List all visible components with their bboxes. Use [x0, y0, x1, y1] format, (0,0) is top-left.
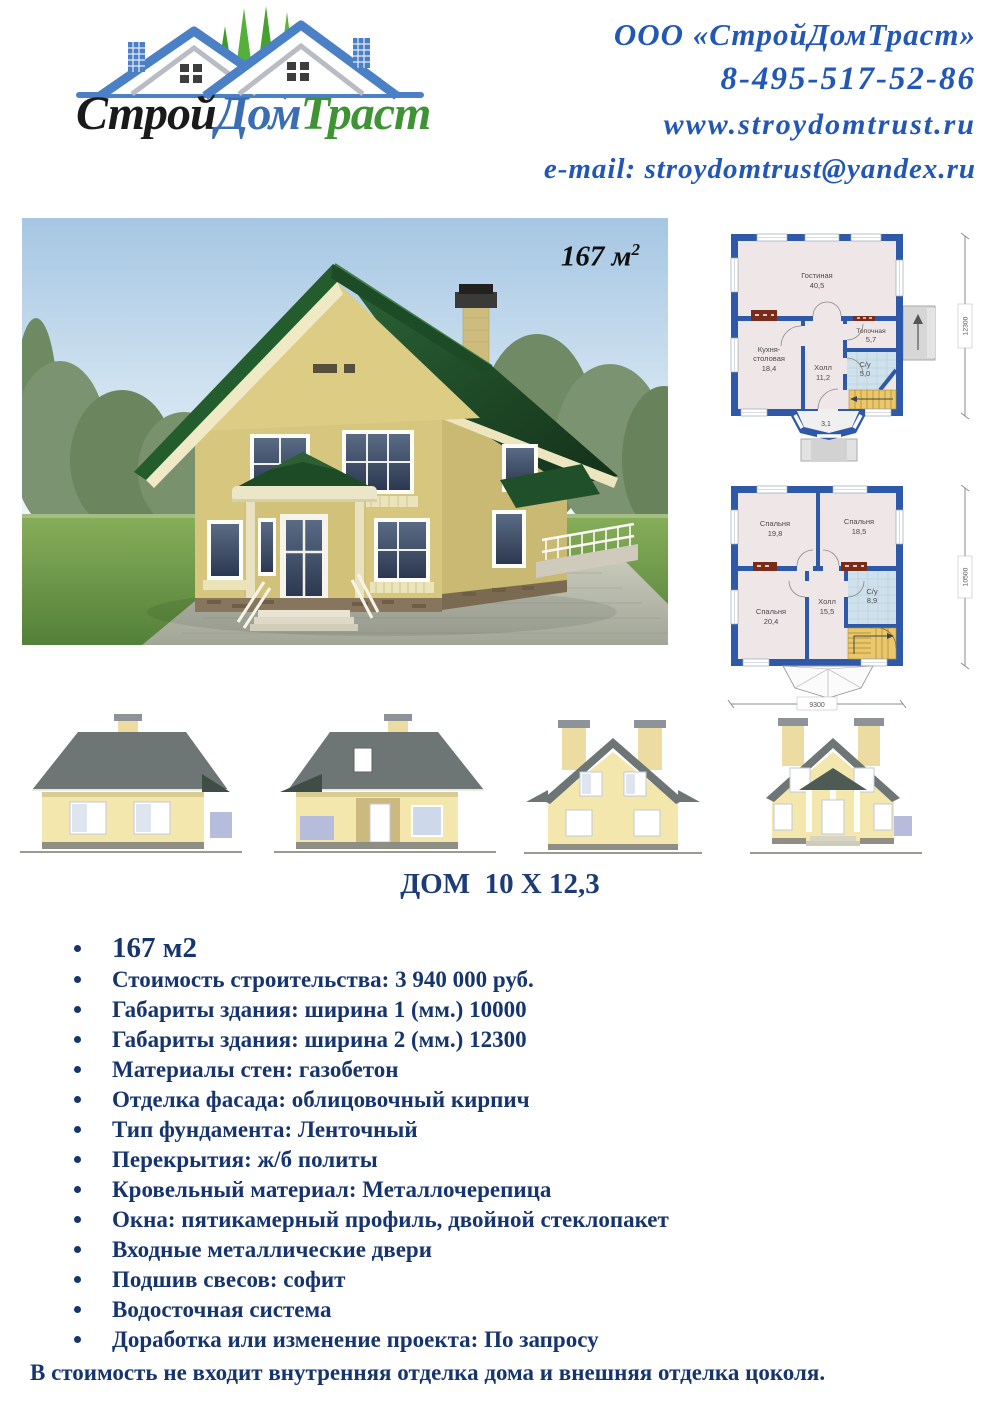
spec-item-drainage: Водосточная система — [74, 1295, 964, 1324]
spec-text: Материалы стен: газобетон — [112, 1055, 399, 1084]
bullet-icon — [74, 1306, 81, 1313]
spec-text: Водосточная система — [112, 1295, 332, 1324]
spec-item-foundation: Тип фундамента: Ленточный — [74, 1115, 964, 1144]
bullet-icon — [74, 1096, 81, 1103]
dimension-label-12300: 12300 — [963, 316, 970, 335]
elevation-side-left — [16, 712, 246, 862]
spec-item-price: Стоимость строительства: 3 940 000 руб. — [74, 965, 964, 994]
room-label-bedroom3: Спальня — [756, 607, 786, 616]
house-render-scene — [22, 218, 668, 645]
area-value: 167 м — [561, 241, 632, 273]
spec-text: Доработка или изменение проекта: По запр… — [112, 1325, 599, 1354]
bullet-icon — [74, 1156, 81, 1163]
bullet-icon — [74, 1036, 81, 1043]
room-label-wc: С/у — [859, 360, 871, 369]
company-name: ООО «СтройДомТраст» — [544, 12, 976, 57]
spec-text: Отделка фасада: облицовочный кирпич — [112, 1085, 530, 1114]
spec-text: Окна: пятикамерный профиль, двойной стек… — [112, 1205, 669, 1234]
spec-item-area: 167 м2 — [74, 932, 964, 964]
spec-item-soffit: Подшив свесов: софит — [74, 1265, 964, 1294]
spec-text: 167 м2 — [112, 932, 197, 964]
room-label-wc2: С/у — [866, 587, 878, 596]
footer-note: В стоимость не входит внутренняя отделка… — [30, 1360, 980, 1386]
company-logo: СтройДомТраст — [76, 6, 424, 196]
room-label-hall: Холл — [814, 363, 832, 372]
room-area-bedroom2: 18,5 — [852, 527, 867, 536]
room-area-hall2: 15,5 — [820, 607, 835, 616]
room-label-kitchen: Кухня- — [758, 345, 781, 354]
room-area-wc: 5,0 — [860, 369, 870, 378]
bullet-icon — [74, 1336, 81, 1343]
logo-word-part2: Дом — [216, 87, 301, 140]
bullet-icon — [74, 1126, 81, 1133]
dimension-label-9300: 9300 — [809, 702, 825, 709]
room-area-vestibule: 3,1 — [821, 421, 831, 428]
spec-item-facade: Отделка фасада: облицовочный кирпич — [74, 1085, 964, 1114]
bullet-icon — [74, 1276, 81, 1283]
spec-item-width1: Габариты здания: ширина 1 (мм.) 10000 — [74, 995, 964, 1024]
dimension-label-10500: 10500 — [963, 567, 970, 586]
room-label-boiler: Топочная — [856, 328, 886, 335]
bullet-icon — [74, 1066, 81, 1073]
spec-item-doors: Входные металлические двери — [74, 1235, 964, 1264]
email-link[interactable]: e-mail: stroydomtrust@yandex.ru — [544, 147, 976, 192]
room-label-bedroom2: Спальня — [844, 517, 874, 526]
bullet-icon — [74, 1186, 81, 1193]
floor-plan-2: Спальня 19,8 Спальня 18,5 Спальня 20,4 Х… — [713, 466, 998, 716]
house-3d-render: 167 м2 — [22, 218, 668, 645]
room-area-boiler: 5,7 — [866, 335, 876, 344]
flyer-page: СтройДомТраст ООО «СтройДомТраст» 8-495-… — [0, 0, 1000, 1414]
elevation-side-right — [270, 712, 500, 862]
bullet-icon — [74, 976, 81, 983]
room-label-living: Гостиная — [801, 271, 832, 280]
contact-block: ООО «СтройДомТраст» 8-495-517-52-86 www.… — [544, 12, 976, 192]
page-title: ДОМ 10 Х 12,3 — [0, 868, 1000, 901]
spec-item-customization: Доработка или изменение проекта: По запр… — [74, 1325, 964, 1354]
room-area-living: 40,5 — [810, 281, 825, 290]
area-sup: 2 — [632, 240, 641, 259]
room-label-hall2: Холл — [818, 597, 836, 606]
spec-item-windows: Окна: пятикамерный профиль, двойной стек… — [74, 1205, 964, 1234]
spec-text: Входные металлические двери — [112, 1235, 432, 1264]
logo-word-part1: Строй — [76, 87, 216, 140]
room-area-hall: 11,2 — [816, 373, 830, 382]
spec-item-width2: Габариты здания: ширина 2 (мм.) 12300 — [74, 1025, 964, 1054]
bullet-icon — [74, 945, 81, 952]
spec-text: Габариты здания: ширина 1 (мм.) 10000 — [112, 995, 527, 1024]
bullet-icon — [74, 1246, 81, 1253]
phone-number: 8-495-517-52-86 — [544, 57, 976, 102]
room-area-kitchen: 18,4 — [762, 364, 777, 373]
specs-list: 167 м2 Стоимость строительства: 3 940 00… — [74, 932, 964, 1355]
room-area-bedroom1: 19,8 — [768, 529, 783, 538]
spec-text: Подшив свесов: софит — [112, 1265, 345, 1294]
spec-text: Кровельный материал: Металлочерепица — [112, 1175, 551, 1204]
elevation-back — [518, 712, 708, 862]
spec-item-roofing: Кровельный материал: Металлочерепица — [74, 1175, 964, 1204]
spec-item-floors: Перекрытия: ж/б политы — [74, 1145, 964, 1174]
spec-text: Стоимость строительства: 3 940 000 руб. — [112, 965, 534, 994]
bullet-icon — [74, 1216, 81, 1223]
logo-wordmark: СтройДомТраст — [76, 86, 424, 141]
room-label-kitchen-2: столовая — [753, 354, 785, 363]
elevation-front — [746, 712, 926, 862]
spec-text: Перекрытия: ж/б политы — [112, 1145, 378, 1174]
logo-word-part3: Траст — [301, 87, 431, 140]
floor-plan-1: Гостиная 40,5 Кухня- столовая 18,4 Топоч… — [713, 220, 998, 465]
bullet-icon — [74, 1006, 81, 1013]
spec-item-walls: Материалы стен: газобетон — [74, 1055, 964, 1084]
spec-text: Габариты здания: ширина 2 (мм.) 12300 — [112, 1025, 527, 1054]
room-label-bedroom1: Спальня — [760, 519, 790, 528]
render-area-label: 167 м2 — [561, 240, 640, 274]
room-area-wc2: 8,9 — [867, 596, 877, 605]
room-area-bedroom3: 20,4 — [764, 617, 779, 626]
website-link[interactable]: www.stroydomtrust.ru — [544, 102, 976, 147]
spec-text: Тип фундамента: Ленточный — [112, 1115, 418, 1144]
